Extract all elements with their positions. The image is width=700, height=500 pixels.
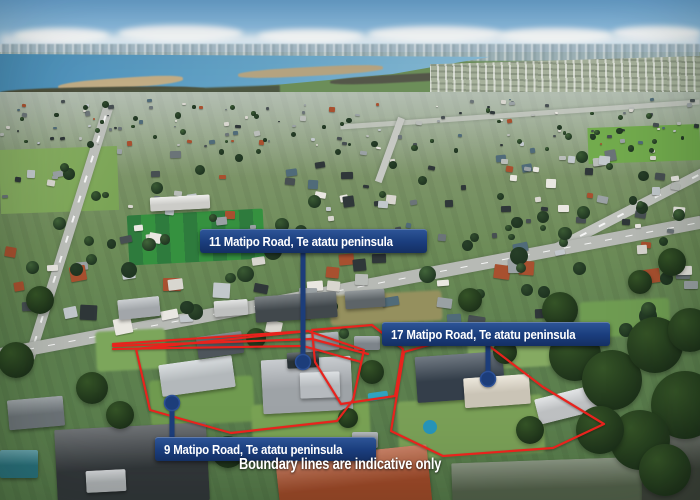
marker-dot-9 (165, 396, 180, 411)
property-label-11: 11 Matipo Road, Te atatu peninsula (200, 229, 427, 253)
marker-dot-11 (296, 355, 311, 370)
aerial-listing-photo: 11 Matipo Road, Te atatu peninsula 17 Ma… (0, 0, 700, 500)
boundary-17-matipo (391, 333, 604, 456)
property-label-17-text: 17 Matipo Road, Te atatu peninsula (391, 323, 575, 346)
disclaimer-text: Boundary lines are indicative only (239, 456, 441, 474)
property-label-17: 17 Matipo Road, Te atatu peninsula (382, 322, 610, 346)
marker-dot-17 (481, 372, 496, 387)
property-label-11-text: 11 Matipo Road, Te atatu peninsula (209, 230, 393, 253)
